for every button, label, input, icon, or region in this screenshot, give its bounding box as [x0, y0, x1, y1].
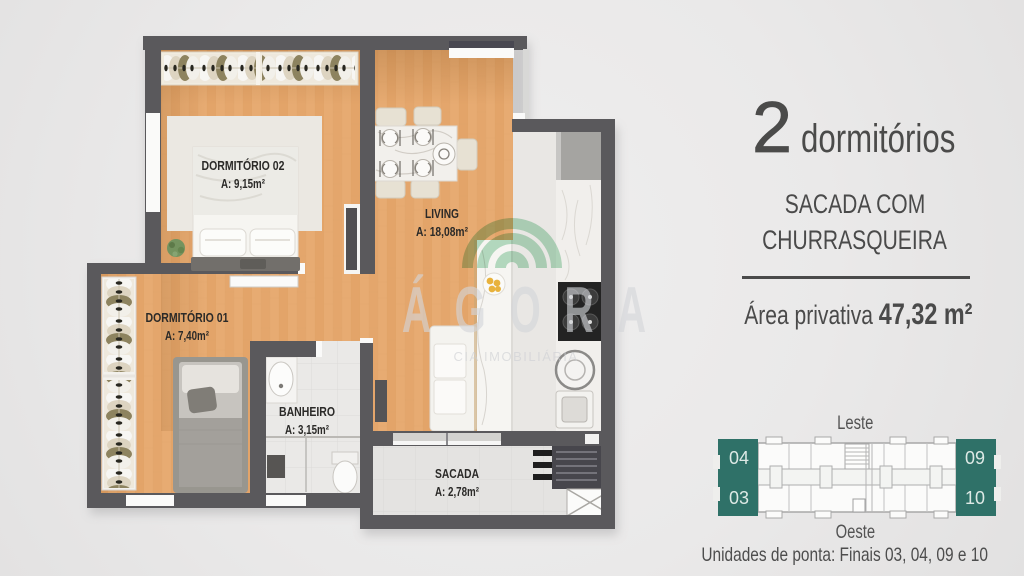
svg-text:DORMITÓRIO 02: DORMITÓRIO 02	[202, 158, 285, 173]
svg-text:DORMITÓRIO 01: DORMITÓRIO 01	[146, 310, 229, 325]
svg-text:A: 7,40m²: A: 7,40m²	[165, 329, 209, 343]
svg-text:A: 2,78m²: A: 2,78m²	[435, 485, 479, 499]
svg-text:10: 10	[965, 488, 985, 508]
svg-text:04: 04	[729, 448, 749, 468]
svg-text:03: 03	[729, 488, 749, 508]
svg-text:ÁGORA: ÁGORA	[402, 274, 670, 346]
svg-text:09: 09	[965, 448, 985, 468]
svg-text:A: 3,15m²: A: 3,15m²	[285, 423, 329, 437]
svg-text:A: 9,15m²: A: 9,15m²	[221, 177, 265, 191]
svg-text:SACADA: SACADA	[435, 466, 479, 481]
svg-text:A: 18,08m²: A: 18,08m²	[416, 225, 468, 239]
svg-text:CIA IMOBILIÁRIA: CIA IMOBILIÁRIA	[453, 349, 578, 364]
svg-text:BANHEIRO: BANHEIRO	[279, 404, 335, 419]
svg-text:LIVING: LIVING	[425, 206, 459, 221]
